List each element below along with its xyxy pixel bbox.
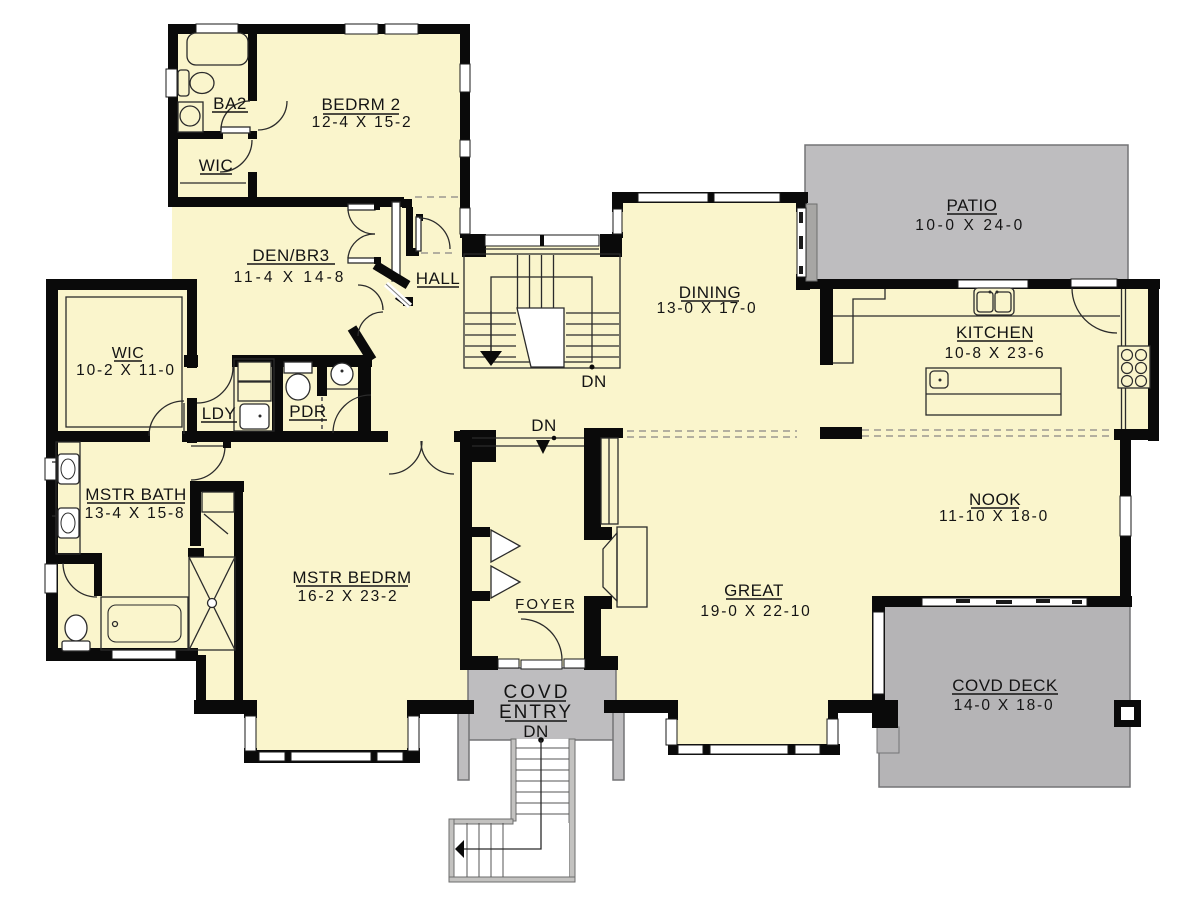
svg-text:BEDRM 2: BEDRM 2 bbox=[321, 95, 400, 114]
svg-text:PATIO: PATIO bbox=[947, 196, 998, 215]
svg-text:DN: DN bbox=[523, 722, 549, 741]
svg-text:11-4 X 14-8: 11-4 X 14-8 bbox=[234, 269, 347, 286]
svg-text:COVD: COVD bbox=[504, 682, 571, 703]
svg-text:BA2: BA2 bbox=[213, 94, 247, 113]
svg-text:HALL: HALL bbox=[416, 269, 461, 288]
svg-text:LDY: LDY bbox=[202, 404, 237, 423]
svg-text:13-4 X 15-8: 13-4 X 15-8 bbox=[85, 505, 186, 522]
svg-text:KITCHEN: KITCHEN bbox=[956, 323, 1034, 342]
svg-text:MSTR BEDRM: MSTR BEDRM bbox=[292, 568, 411, 587]
svg-text:WIC: WIC bbox=[112, 345, 145, 362]
svg-text:COVD DECK: COVD DECK bbox=[952, 676, 1058, 695]
svg-text:PDR: PDR bbox=[289, 402, 326, 421]
svg-text:10-8 X 23-6: 10-8 X 23-6 bbox=[945, 345, 1046, 362]
svg-text:ENTRY: ENTRY bbox=[499, 702, 573, 723]
svg-text:16-2 X 23-2: 16-2 X 23-2 bbox=[298, 588, 399, 605]
svg-text:FOYER: FOYER bbox=[515, 596, 577, 613]
svg-text:WIC: WIC bbox=[199, 156, 234, 175]
svg-text:14-0 X 18-0: 14-0 X 18-0 bbox=[954, 697, 1055, 714]
svg-text:DN: DN bbox=[581, 372, 607, 391]
svg-text:MSTR BATH: MSTR BATH bbox=[85, 485, 186, 504]
svg-text:11-10 X 18-0: 11-10 X 18-0 bbox=[939, 508, 1049, 525]
svg-text:NOOK: NOOK bbox=[969, 490, 1021, 509]
svg-text:13-0 X 17-0: 13-0 X 17-0 bbox=[657, 300, 758, 317]
svg-text:DN: DN bbox=[531, 416, 557, 435]
svg-text:DEN/BR3: DEN/BR3 bbox=[252, 246, 329, 265]
svg-text:GREAT: GREAT bbox=[724, 581, 784, 600]
svg-text:19-0 X 22-10: 19-0 X 22-10 bbox=[700, 603, 811, 620]
svg-text:10-0 X 24-0: 10-0 X 24-0 bbox=[915, 217, 1025, 234]
svg-text:12-4 X 15-2: 12-4 X 15-2 bbox=[312, 114, 413, 131]
svg-text:10-2 X 11-0: 10-2 X 11-0 bbox=[76, 362, 176, 379]
